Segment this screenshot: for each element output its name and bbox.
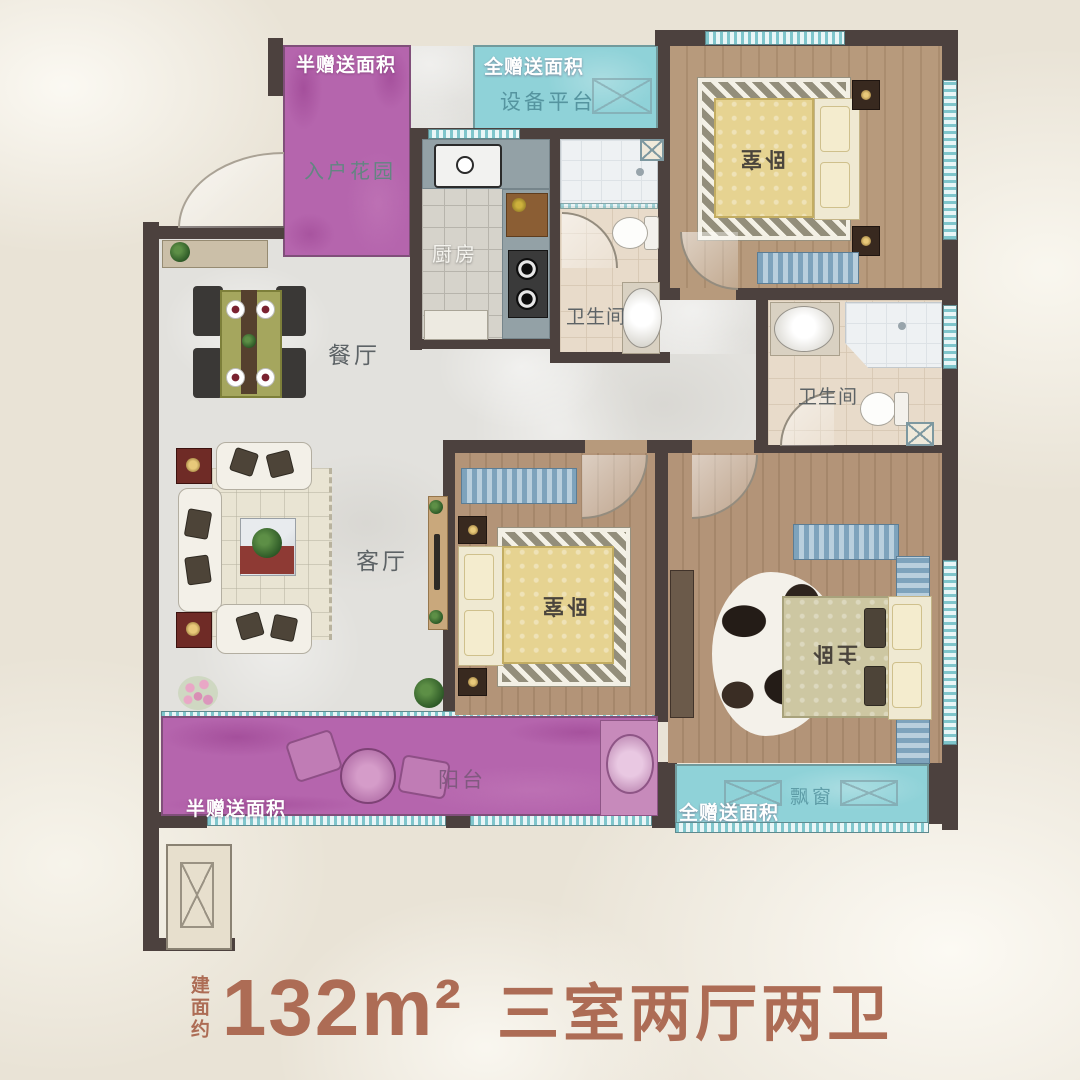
bath1-basin	[622, 288, 662, 348]
coffee-table-plant	[252, 528, 282, 558]
window-kitchen-top	[428, 129, 520, 139]
bedroom-mid-pillow-2	[464, 610, 494, 656]
bath1-toilet-bowl	[612, 217, 648, 249]
dining-chair-2	[193, 348, 223, 398]
corridor-floor-2	[660, 300, 770, 354]
wall-master-left	[655, 440, 668, 722]
master-pillow-2	[892, 662, 922, 708]
window-master-right	[943, 560, 957, 745]
bath2-label: 卫生间	[798, 382, 858, 409]
kitchen-sink-drain	[456, 156, 474, 174]
master-label: 主卧	[810, 640, 858, 670]
bath2-toilet-tank	[894, 392, 909, 426]
tv-plant-2	[429, 610, 443, 624]
wall-kitchen-left	[410, 128, 422, 350]
bedroomtr-door-gap	[680, 288, 736, 300]
bath2-shower-drain	[898, 322, 906, 330]
bedroom-mid-nightstand-1	[458, 516, 487, 544]
master-bench	[793, 524, 899, 560]
gift-label-top-left: 半赠送面积	[296, 50, 396, 77]
master-pillow-1	[892, 604, 922, 650]
gift-label-top-center: 全赠送面积	[484, 52, 584, 79]
caption-layout: 三室两厅两卫	[497, 963, 893, 1053]
stove-burner-2	[516, 288, 538, 310]
side-table-2-inlay	[186, 622, 200, 636]
bath2-duct-icon	[906, 422, 934, 446]
dining-label: 餐厅	[328, 336, 380, 370]
wall-garden-stub	[268, 38, 283, 96]
bath1-duct-icon	[640, 139, 664, 161]
master-pillow-dark-2	[864, 666, 886, 706]
floorplan-page: { "caption": { "prefix": "建面约", "area": …	[0, 0, 1080, 1080]
bay-window-label: 飘窗	[790, 782, 834, 809]
caption-prefix: 建面约	[187, 975, 208, 1041]
bath2-shower	[845, 302, 942, 368]
dining-plate-2	[256, 300, 275, 319]
dining-plate-3	[226, 368, 245, 387]
balcony-table	[340, 748, 396, 804]
balcony-label: 阳台	[438, 764, 486, 794]
window-bedroomtr-top	[705, 31, 845, 45]
foyer-floor	[410, 46, 475, 136]
kitchen-cutting-board	[506, 193, 548, 237]
gift-label-bottom-left: 半赠送面积	[186, 794, 286, 821]
master-pillow-dark-1	[864, 608, 886, 648]
bedroom-top-bench	[757, 252, 859, 284]
living-label: 客厅	[356, 542, 408, 576]
master-dresser	[670, 570, 694, 718]
caption: 建面约 132m² 三室两厅两卫	[0, 962, 1080, 1054]
bay-window-sill	[675, 822, 929, 833]
window-bedroomtr-right	[943, 80, 957, 240]
dining-plate-1	[226, 300, 245, 319]
living-shrub	[414, 678, 444, 708]
sofa-pillow-3	[184, 508, 212, 540]
bath1-label: 卫生间	[566, 302, 626, 329]
bedroommid-door-gap	[585, 440, 647, 453]
sideboard-plant	[170, 242, 190, 262]
wall-bath2-top	[756, 288, 956, 300]
dining-plate-4	[256, 368, 275, 387]
kitchen-veggies	[512, 198, 526, 212]
bath1-shower-drain	[636, 168, 644, 176]
kitchen-label: 厨房	[432, 238, 478, 267]
bath1-window-sill	[560, 203, 658, 209]
wall-bedroomtr-left	[658, 30, 670, 300]
balcony-laundry-basin	[606, 734, 654, 794]
window-bath2-right	[943, 305, 957, 369]
dining-chair-1	[193, 286, 223, 336]
entrance-garden-label: 入户花园	[304, 155, 396, 184]
equipment-platform-label: 设备平台	[500, 86, 596, 116]
wall-bath2-left	[756, 288, 768, 458]
ac-vent-icon	[592, 78, 652, 114]
sofa-bottom	[216, 604, 312, 654]
living-flowers	[178, 676, 218, 710]
sofa-pillow-6	[270, 614, 298, 642]
bath2-basin	[774, 306, 834, 352]
wall-left	[143, 222, 159, 950]
wall-bath1-left	[550, 128, 560, 360]
bay-vent-icon-2	[840, 780, 898, 806]
gift-label-bottom-right: 全赠送面积	[679, 798, 779, 825]
bedroom-mid-label: 卧室	[540, 592, 588, 622]
wall-master-bottom-stub-r	[928, 762, 958, 824]
sofa-pillow-4	[184, 554, 212, 585]
bedroom-mid-wardrobe	[461, 468, 577, 504]
bedroom-mid-nightstand-2	[458, 668, 487, 696]
tv-plant-1	[429, 500, 443, 514]
tv-set	[434, 534, 440, 590]
bedroom-top-label: 卧室	[738, 145, 786, 175]
bedroom-top-nightstand-1	[852, 80, 880, 110]
dining-centerpiece	[242, 334, 256, 348]
side-table-1-inlay	[186, 458, 200, 472]
bedroom-mid-pillow-1	[464, 554, 494, 600]
caption-area: 132m²	[222, 962, 463, 1054]
bath2-toilet-bowl	[860, 392, 896, 426]
kitchen-cabinet	[424, 310, 488, 340]
master-door-gap	[692, 440, 754, 453]
bedroom-top-pillow-1	[820, 106, 850, 152]
sofa-left	[178, 488, 222, 612]
stove-burner-1	[516, 258, 538, 280]
shaft-duct-icon	[180, 862, 214, 928]
bedroom-top-pillow-2	[820, 162, 850, 208]
entry-door-arc	[178, 152, 284, 228]
